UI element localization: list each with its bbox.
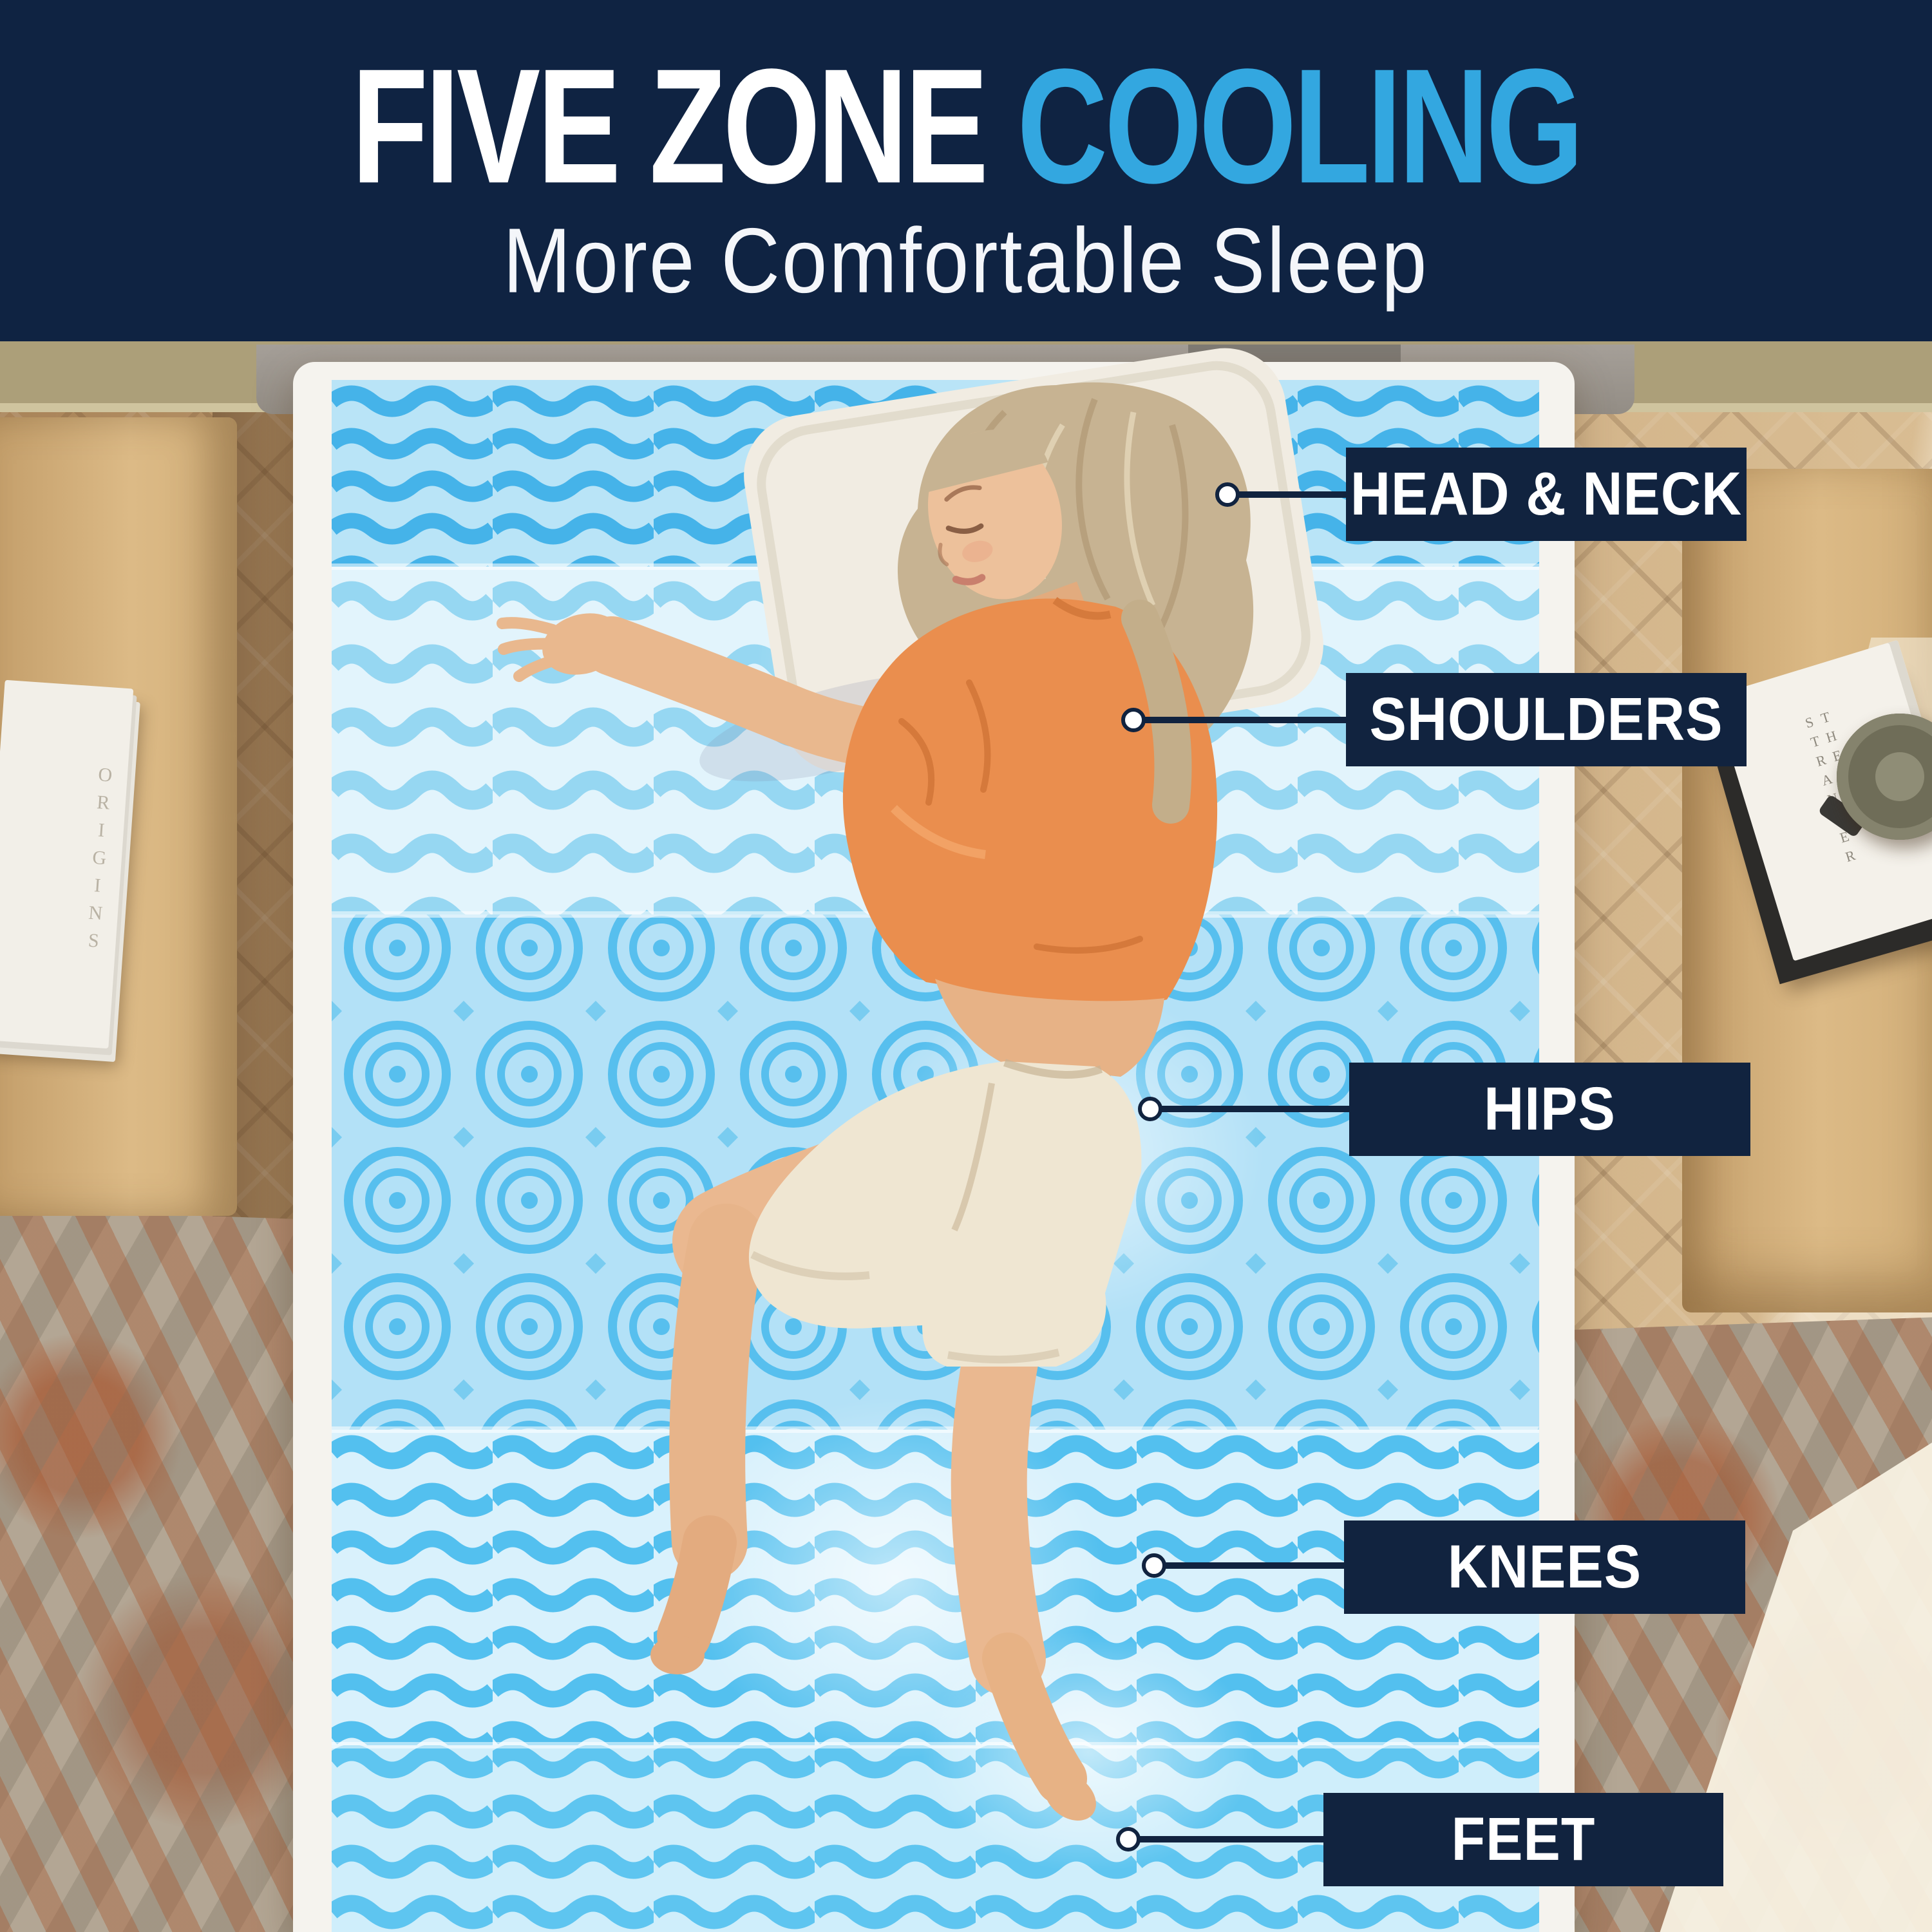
label-text: HEAD & NECK: [1350, 459, 1742, 529]
callout-dot: [1138, 1097, 1162, 1121]
infographic-canvas: FIVE ZONE COOLING More Comfortable Sleep…: [0, 0, 1932, 1932]
title-primary: FIVE ZONE: [352, 35, 985, 217]
foot: [650, 1636, 705, 1674]
callout-line: [1160, 1562, 1347, 1569]
callout-line: [1156, 1106, 1352, 1112]
label-box: FEET: [1323, 1793, 1723, 1886]
label-box: SHOULDERS: [1346, 673, 1747, 766]
callout-dot: [1142, 1553, 1166, 1578]
book-stack-text: ORIGINS: [81, 764, 117, 959]
callout-dot: [1116, 1827, 1141, 1851]
label-text: KNEES: [1448, 1532, 1642, 1602]
label-text: HIPS: [1484, 1074, 1616, 1144]
callout-line: [1139, 717, 1349, 723]
shorts: [749, 1061, 1142, 1367]
page-title: FIVE ZONE COOLING: [352, 45, 1580, 209]
label-text: FEET: [1452, 1804, 1596, 1875]
label-box: HEAD & NECK: [1346, 448, 1747, 541]
callout-dot: [1215, 482, 1240, 507]
label-box: HIPS: [1349, 1063, 1750, 1156]
label-text: SHOULDERS: [1370, 685, 1723, 755]
shin: [989, 1323, 1008, 1658]
callout-line: [1134, 1836, 1327, 1842]
callout-dot: [1121, 708, 1146, 732]
label-box: KNEES: [1344, 1520, 1745, 1614]
header-banner: FIVE ZONE COOLING More Comfortable Sleep: [0, 0, 1932, 341]
callout-line: [1233, 491, 1349, 498]
title-accent: COOLING: [1017, 35, 1580, 217]
rug-left: [0, 1208, 322, 1932]
shin: [707, 1242, 726, 1542]
page-subtitle: More Comfortable Sleep: [503, 207, 1428, 313]
